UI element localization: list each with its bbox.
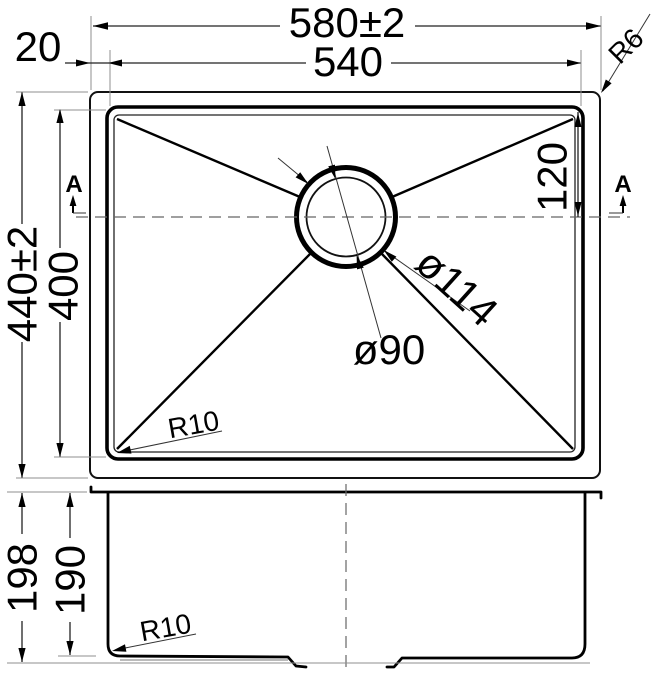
- dim-drain-inner-dia: ø90: [353, 326, 425, 373]
- top-view-dimensions: 580±2 540 20 440±2 400 120: [0, 0, 650, 478]
- dim-overall-height: 198: [0, 543, 46, 613]
- technical-drawing-sheet: 580±2 540 20 440±2 400 120: [0, 0, 652, 676]
- sink-drawing-svg: 580±2 540 20 440±2 400 120: [0, 0, 652, 676]
- dim-rim-offset: 20: [15, 23, 62, 70]
- front-view: [91, 484, 601, 674]
- section-label-left: A: [65, 171, 82, 198]
- dim-inner-width: 540: [313, 38, 383, 85]
- front-bowl-right-profile: [387, 493, 585, 667]
- section-marker-right: A: [609, 171, 632, 213]
- dim-drain-outer-dia: ø114: [407, 239, 507, 336]
- front-bowl-left-profile: [108, 493, 306, 667]
- label-inner-corner-radius: R10: [166, 405, 222, 444]
- front-view-dimensions: 198 190 R10: [0, 492, 590, 663]
- label-outer-corner-radius: R6: [602, 22, 649, 69]
- dim-drain-offset: 120: [529, 142, 576, 212]
- corner-diagonal-tl: [117, 119, 300, 197]
- section-marker-left: A: [65, 171, 86, 213]
- label-bottom-corner-radius: R10: [138, 608, 194, 647]
- dim-inner-depth: 400: [40, 251, 87, 321]
- section-label-right: A: [614, 171, 631, 198]
- dim-bowl-depth: 190: [47, 545, 94, 615]
- bowl-top-edge: [107, 107, 583, 459]
